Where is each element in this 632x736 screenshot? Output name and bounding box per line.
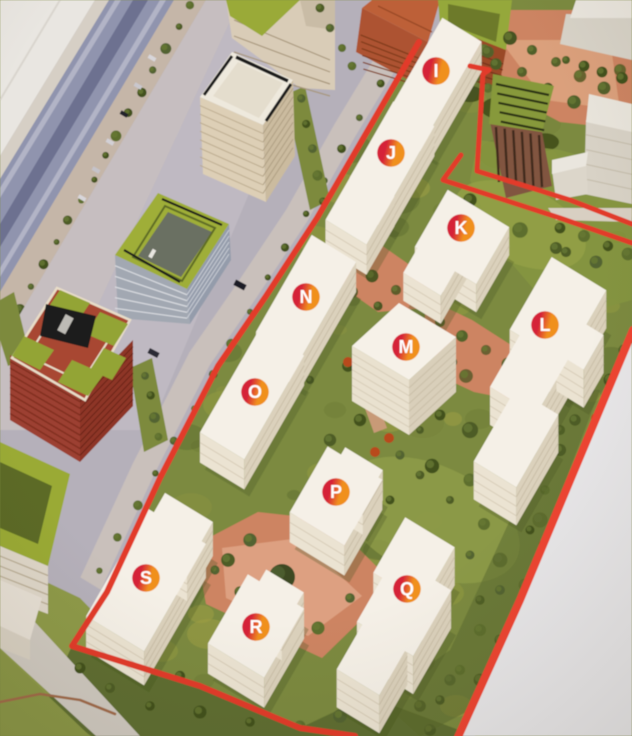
svg-text:I: I <box>433 61 438 81</box>
svg-text:J: J <box>386 143 396 163</box>
svg-text:S: S <box>140 568 152 588</box>
svg-text:Q: Q <box>400 579 414 599</box>
svg-text:L: L <box>540 315 551 335</box>
svg-text:O: O <box>248 382 262 402</box>
svg-text:M: M <box>399 337 414 357</box>
svg-text:N: N <box>300 287 313 307</box>
svg-text:P: P <box>330 482 342 502</box>
svg-text:R: R <box>250 617 263 637</box>
svg-text:K: K <box>455 218 468 238</box>
